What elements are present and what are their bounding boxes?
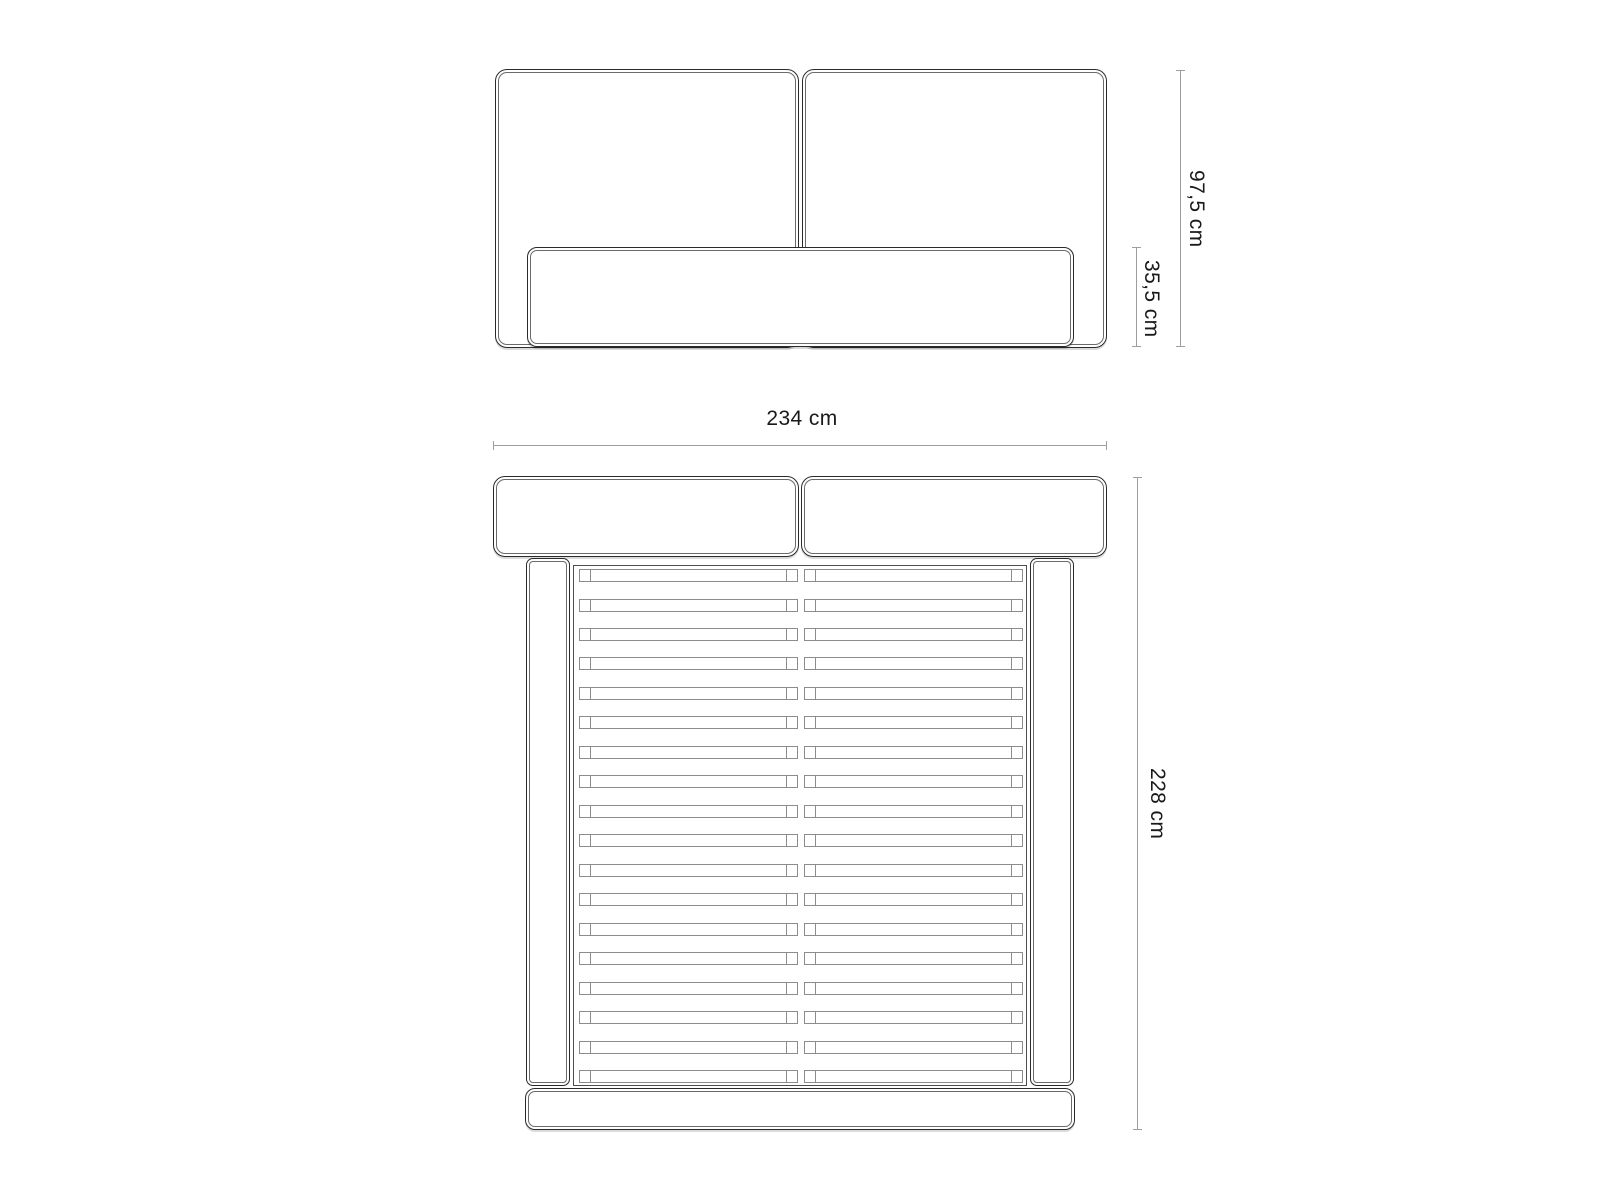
- slat-left: [579, 599, 798, 612]
- dim-tick: [1132, 247, 1141, 248]
- dim-label-total-height: 97,5 cm: [1185, 170, 1207, 248]
- dim-tick: [493, 441, 494, 450]
- slat-right: [804, 952, 1023, 965]
- slat-left: [579, 923, 798, 936]
- slat-right: [804, 805, 1023, 818]
- slat-right: [804, 687, 1023, 700]
- slat-left: [579, 569, 798, 582]
- slat-left: [579, 775, 798, 788]
- slat-right: [804, 864, 1023, 877]
- plan-side-rail-right: [1030, 558, 1074, 1086]
- dim-tick: [1132, 346, 1141, 347]
- plan-footboard: [525, 1088, 1075, 1130]
- slat-right: [804, 1011, 1023, 1024]
- dim-label-width: 234 cm: [766, 408, 837, 430]
- slat-left: [579, 628, 798, 641]
- slat-right: [804, 1070, 1023, 1083]
- dim-line-total-height: [1180, 70, 1181, 347]
- dim-label-box-height: 35,5 cm: [1140, 260, 1162, 338]
- dim-tick: [1176, 346, 1185, 347]
- plan-headboard-left-panel: [493, 476, 799, 557]
- dim-tick: [1133, 1129, 1142, 1130]
- slat-left: [579, 805, 798, 818]
- slat-right: [804, 599, 1023, 612]
- plan-side-rail-left: [526, 558, 570, 1086]
- dim-line-width: [493, 445, 1107, 446]
- dim-tick: [1106, 441, 1107, 450]
- slat-right: [804, 657, 1023, 670]
- slat-left: [579, 716, 798, 729]
- slat-right: [804, 746, 1023, 759]
- slat-right: [804, 893, 1023, 906]
- slat-left: [579, 1011, 798, 1024]
- dim-line-depth: [1137, 477, 1138, 1130]
- plan-headboard-right-panel: [801, 476, 1107, 557]
- slat-left: [579, 657, 798, 670]
- slat-left: [579, 1070, 798, 1083]
- dim-label-depth: 228 cm: [1146, 768, 1168, 839]
- slat-left: [579, 952, 798, 965]
- slat-right: [804, 569, 1023, 582]
- technical-drawing-canvas: 97,5 cm 35,5 cm 234 cm 228 cm: [0, 0, 1599, 1199]
- slat-left: [579, 834, 798, 847]
- slat-right: [804, 1041, 1023, 1054]
- slat-right: [804, 923, 1023, 936]
- slat-left: [579, 1041, 798, 1054]
- slat-right: [804, 628, 1023, 641]
- elevation-bed-frame-front: [527, 247, 1074, 347]
- dim-tick: [1133, 477, 1142, 478]
- slat-right: [804, 775, 1023, 788]
- slat-deck: [573, 565, 1027, 1086]
- slat-right: [804, 834, 1023, 847]
- slat-right: [804, 982, 1023, 995]
- dim-line-box-height: [1136, 247, 1137, 347]
- slat-left: [579, 864, 798, 877]
- slat-right: [804, 716, 1023, 729]
- slat-left: [579, 687, 798, 700]
- slat-left: [579, 982, 798, 995]
- dim-tick: [1176, 70, 1185, 71]
- slat-left: [579, 746, 798, 759]
- slat-left: [579, 893, 798, 906]
